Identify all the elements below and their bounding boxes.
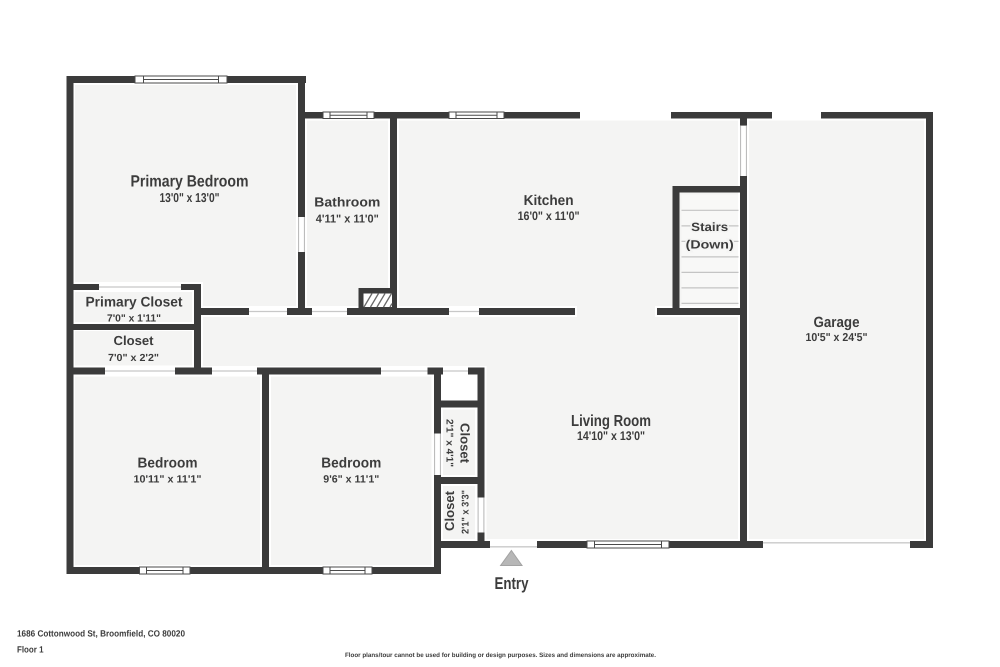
svg-text:Primary Bedroom: Primary Bedroom: [131, 173, 249, 191]
svg-text:Closet: Closet: [458, 423, 473, 464]
svg-text:10'11" x 11'1": 10'11" x 11'1": [134, 474, 202, 486]
svg-text:13'0" x 13'0": 13'0" x 13'0": [160, 190, 220, 205]
svg-text:Bedroom: Bedroom: [138, 456, 198, 472]
svg-text:Living Room: Living Room: [571, 413, 651, 430]
svg-text:4'11" x 11'0": 4'11" x 11'0": [316, 214, 379, 226]
svg-text:Bedroom: Bedroom: [321, 456, 381, 472]
svg-text:Bathroom: Bathroom: [314, 194, 380, 209]
svg-text:14'10" x 13'0": 14'10" x 13'0": [577, 429, 645, 443]
svg-text:Floor 1: Floor 1: [17, 645, 44, 655]
svg-text:Primary Closet: Primary Closet: [86, 293, 183, 309]
svg-text:Closet: Closet: [442, 490, 457, 531]
svg-text:1686 Cottonwood St, Broomfield: 1686 Cottonwood St, Broomfield, CO 80020: [17, 629, 185, 639]
svg-text:Kitchen: Kitchen: [524, 193, 574, 209]
svg-text:10'5" x 24'5": 10'5" x 24'5": [806, 332, 868, 344]
svg-text:9'6" x 11'1": 9'6" x 11'1": [323, 474, 379, 486]
svg-text:Stairs: Stairs: [691, 220, 728, 234]
svg-text:7'0" x 1'11": 7'0" x 1'11": [107, 313, 161, 324]
svg-text:7'0" x 2'2": 7'0" x 2'2": [108, 353, 159, 364]
svg-text:2'1" x 3'3": 2'1" x 3'3": [461, 490, 472, 534]
svg-text:Closet: Closet: [114, 333, 155, 348]
svg-text:Entry: Entry: [495, 574, 529, 593]
svg-text:Floor plans/tour cannot be use: Floor plans/tour cannot be used for buil…: [345, 652, 656, 659]
svg-text:(Down): (Down): [686, 237, 734, 251]
svg-text:Garage: Garage: [814, 315, 860, 331]
svg-text:2'1" x 4'1": 2'1" x 4'1": [444, 419, 455, 467]
svg-text:16'0" x 11'0": 16'0" x 11'0": [518, 209, 580, 223]
